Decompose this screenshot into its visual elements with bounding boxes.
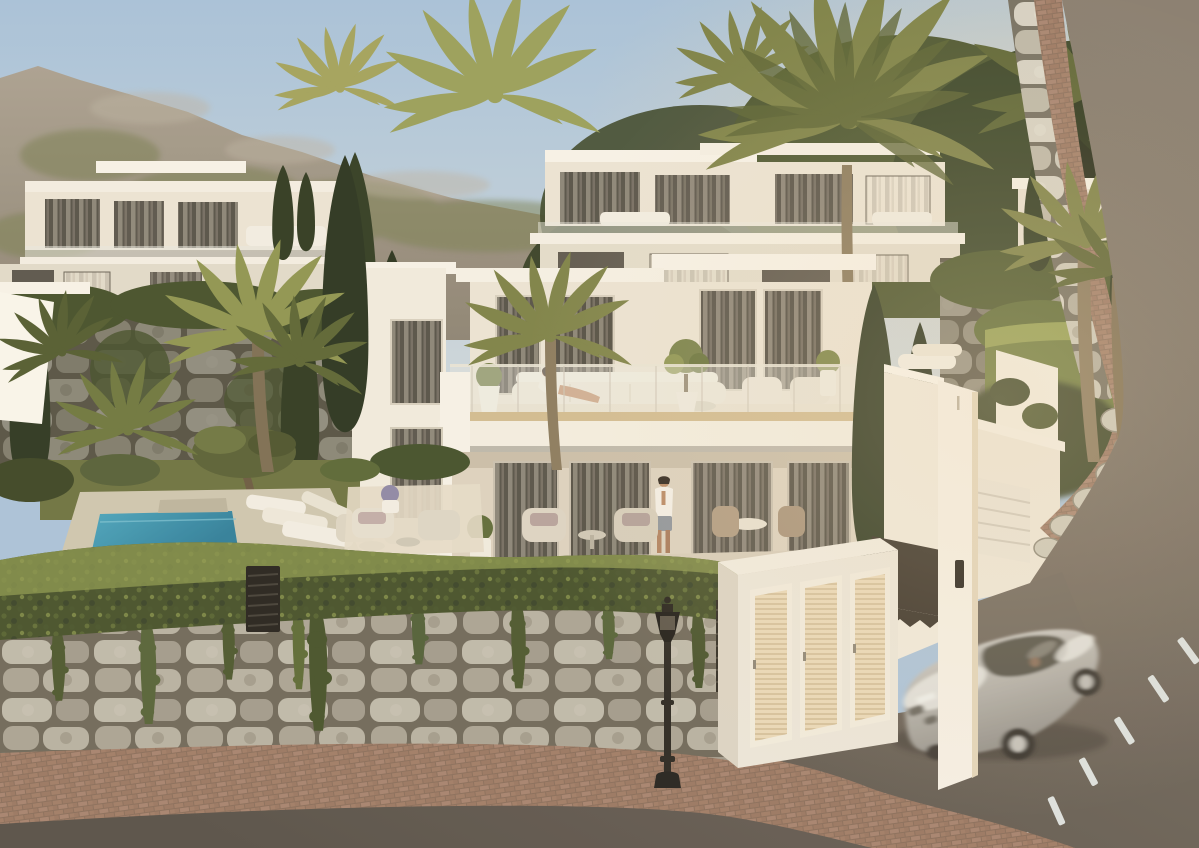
car [892,629,1108,760]
driver [1030,657,1040,667]
louver-door [750,583,792,748]
villa-render-scene [0,0,1199,848]
garden-seating [336,484,484,556]
entrance-pillar [938,380,978,790]
lamp-base [654,772,681,789]
louver-door [850,567,890,728]
lamp-finial [664,597,671,604]
louver-door [800,575,842,738]
garage-door [975,477,1030,563]
house-number-mark [957,396,960,410]
utility-cabinet [718,538,898,768]
door-handle [853,644,856,653]
cabinet-side [718,562,738,768]
hair [658,476,670,484]
pool-step [158,498,228,513]
door-handle [753,660,756,669]
door-handle [803,652,806,661]
intercom-panel [955,560,964,588]
windows [45,199,238,248]
terrace-wood-edge [452,412,866,421]
wall-vent-grate [246,566,280,632]
potted-lavender [381,485,399,513]
terrace-fascia [438,421,874,446]
balustrade-glass [450,364,864,412]
lamp-glass [660,616,675,630]
fascia-shadow [438,446,874,452]
